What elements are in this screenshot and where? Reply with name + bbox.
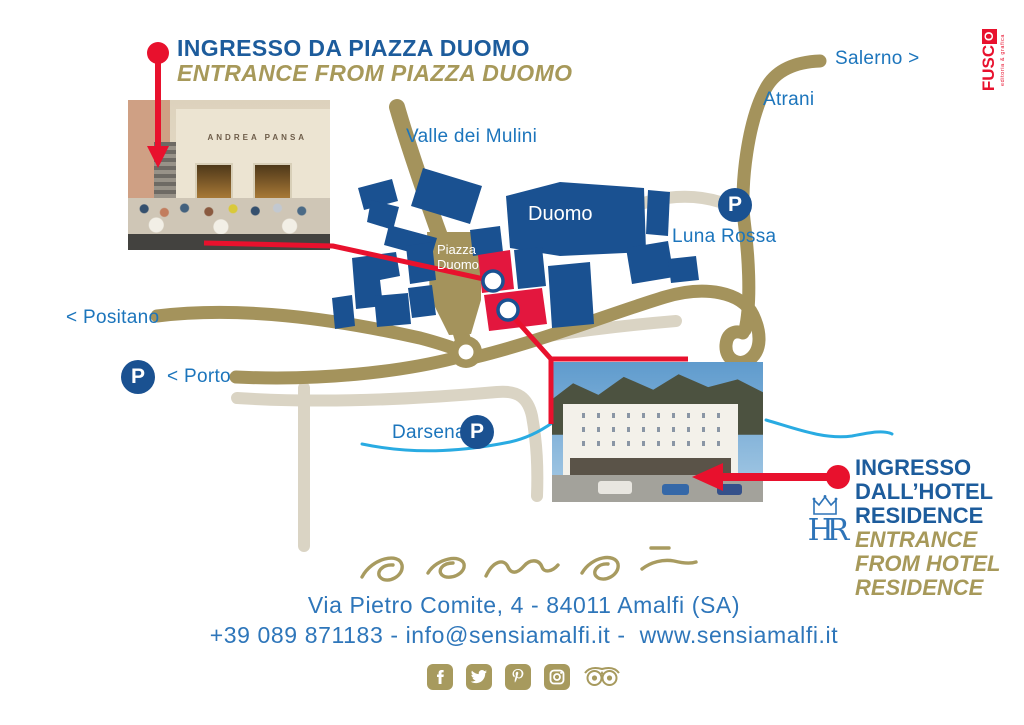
instagram-icon[interactable] [544,664,570,690]
label-salerno: Salerno > [835,48,920,70]
hotel-car [598,481,632,494]
hotel-entrance-block: INGRESSO DALL’HOTEL RESIDENCE ENTRANCE F… [855,456,1000,600]
label-atrani: Atrani [763,89,814,111]
cafe-sign-text: ANDREA PANSA [189,133,326,142]
map-roundabout [450,336,482,368]
fusco-logo: FUSCO editoria & grafica [979,15,1007,105]
hotel-residence-logo: HR [798,494,852,546]
hotel-entrance-title-line: RESIDENCE [855,504,1000,528]
hotel-building [563,404,738,477]
label-valle-dei-mulini: Valle dei Mulini [406,126,537,148]
label-darsena: Darsena [392,422,466,444]
label-duomo: Duomo [528,203,592,226]
cafe-street [128,234,330,251]
label-positano: < Positano [66,307,159,329]
hotel-windows [570,413,731,446]
fusco-tagline: editoria & grafica [1000,34,1006,86]
label-porto: < Porto [167,366,231,388]
tripadvisor-icon[interactable] [583,664,621,690]
cafe-diners [128,198,330,234]
flyer-canvas: ANDREA PANSA [0,0,1024,725]
hotel-photo [552,362,763,502]
hotel-car [662,484,689,495]
fusco-name: FUSCO [979,29,999,91]
cafe-photo: ANDREA PANSA [128,100,330,250]
parking-icon-darsena: P [460,415,494,449]
label-piazza-duomo: Piazza Duomo [437,242,479,272]
twitter-icon[interactable] [466,664,492,690]
facebook-icon[interactable] [427,664,453,690]
social-row [24,664,1024,690]
parking-icon-porto: P [121,360,155,394]
sensi-script-logo [352,544,702,596]
hotel-car [717,484,742,495]
piazza-entrance-title: INGRESSO DA PIAZZA DUOMO [177,35,530,62]
pinterest-icon[interactable] [505,664,531,690]
fusco-o-box: O [982,29,997,44]
hotel-entrance-title-line: INGRESSO [855,456,1000,480]
hotel-entrance-title-line: DALL’HOTEL [855,480,1000,504]
parking-icon-luna-rossa: P [718,188,752,222]
hotel-entrance-subtitle-line: ENTRANCE [855,528,1000,552]
label-luna-rossa: Luna Rossa [672,226,776,248]
piazza-entrance-subtitle: ENTRANCE FROM PIAZZA DUOMO [177,60,572,87]
hr-monogram: HR [798,516,852,546]
address-line: Via Pietro Comite, 4 - 84011 Amalfi (SA) [24,592,1024,619]
contact-line: +39 089 871183 - info@sensiamalfi.it - w… [24,622,1024,649]
hotel-entrance-subtitle-line: FROM HOTEL [855,552,1000,576]
hotel-arcade [570,458,731,477]
